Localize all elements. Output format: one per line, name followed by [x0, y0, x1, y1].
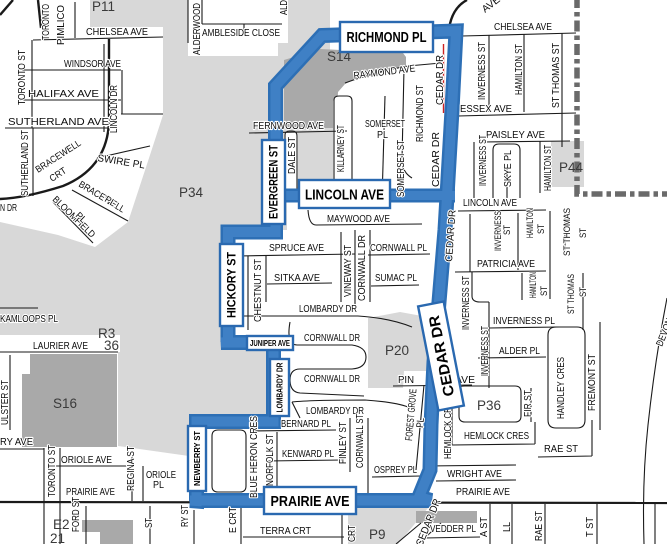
svg-text:PIN: PIN: [398, 375, 414, 386]
svg-text:CORNWALL DR: CORNWALL DR: [357, 235, 368, 301]
svg-text:MAYWOOD AVE: MAYWOOD AVE: [327, 214, 390, 225]
svg-text:SOMERSET ST: SOMERSET ST: [396, 140, 407, 197]
svg-text:HAMILTON: HAMILTON: [525, 208, 535, 238]
svg-text:ST: ST: [502, 225, 512, 235]
svg-text:WRIGHT AVE: WRIGHT AVE: [447, 469, 502, 480]
svg-text:CORNWALL DR: CORNWALL DR: [304, 374, 360, 385]
svg-text:AMBLESIDE CLOSE: AMBLESIDE CLOSE: [202, 28, 280, 39]
svg-text:RAE ST: RAE ST: [534, 511, 545, 541]
svg-text:E2: E2: [53, 517, 70, 532]
svg-text:PL: PL: [415, 417, 427, 428]
svg-text:T ST: T ST: [585, 517, 596, 537]
svg-text:P34: P34: [179, 185, 204, 200]
svg-text:P20: P20: [385, 343, 409, 358]
svg-text:HEMLOCK CRES: HEMLOCK CRES: [464, 431, 529, 442]
svg-text:PL: PL: [153, 480, 164, 491]
svg-text:SUTHERLAND AVE: SUTHERLAND AVE: [8, 117, 109, 128]
svg-text:RY ST: RY ST: [180, 505, 191, 527]
svg-text:INVERNESS PL: INVERNESS PL: [493, 316, 555, 327]
svg-text:CRT: CRT: [347, 525, 358, 542]
svg-text:DALE ST: DALE ST: [287, 137, 298, 174]
svg-text:LINCOLN AVE: LINCOLN AVE: [305, 188, 384, 204]
svg-text:VINEWAY ST: VINEWAY ST: [343, 245, 354, 297]
svg-text:BERNARD PL: BERNARD PL: [281, 419, 331, 430]
svg-text:TORONTO ST: TORONTO ST: [17, 50, 28, 105]
svg-text:LAURIER AVE: LAURIER AVE: [33, 341, 88, 352]
svg-text:NEWBERRY ST: NEWBERRY ST: [192, 430, 202, 486]
svg-text:INVERNESS ST: INVERNESS ST: [477, 42, 488, 100]
svg-text:RY AVE: RY AVE: [0, 437, 33, 448]
svg-text:E CRT: E CRT: [228, 507, 239, 533]
svg-text:ALD: ALD: [279, 0, 290, 15]
svg-text:CORNWALL ST: CORNWALL ST: [355, 414, 366, 468]
svg-text:PATRICIA AVE: PATRICIA AVE: [477, 259, 535, 270]
svg-text:ESSEX AVE: ESSEX AVE: [460, 104, 512, 115]
svg-text:SITKA AVE: SITKA AVE: [274, 273, 320, 284]
svg-text:LL: LL: [502, 522, 513, 532]
svg-text:P44: P44: [559, 160, 584, 175]
svg-text:LINCOLN AVE: LINCOLN AVE: [463, 198, 517, 209]
svg-text:HALIFAX AVE: HALIFAX AVE: [28, 89, 99, 100]
svg-text:CHESTNUT ST: CHESTNUT ST: [253, 259, 264, 322]
svg-text:ST THOMAS: ST THOMAS: [566, 274, 576, 314]
svg-text:LOMBARDY DR: LOMBARDY DR: [275, 363, 285, 413]
svg-text:TORONTO: TORONTO: [41, 4, 52, 40]
svg-text:OSPREY PL: OSPREY PL: [374, 465, 417, 476]
svg-text:S16: S16: [53, 396, 77, 411]
svg-text:P36: P36: [477, 398, 501, 413]
svg-text:EVERGREEN ST: EVERGREEN ST: [269, 145, 281, 219]
svg-text:TORONTO ST: TORONTO ST: [47, 445, 58, 497]
svg-text:N DR: N DR: [0, 203, 17, 214]
svg-text:PRAIRIE AVE: PRAIRIE AVE: [66, 487, 115, 498]
svg-text:KAMLOOPS PL: KAMLOOPS PL: [0, 314, 58, 325]
svg-text:INVERNESS ST: INVERNESS ST: [478, 135, 489, 186]
svg-text:HICKORY ST: HICKORY ST: [225, 251, 239, 318]
svg-text:FORD ST: FORD ST: [71, 497, 82, 532]
svg-text:KENWARD PL: KENWARD PL: [282, 449, 334, 460]
svg-text:ST THOMAS ST: ST THOMAS ST: [551, 43, 562, 108]
svg-text:P11: P11: [92, 0, 115, 14]
svg-text:CORNWALL PL: CORNWALL PL: [370, 243, 427, 254]
svg-text:HAMILTON ST: HAMILTON ST: [514, 44, 525, 95]
svg-text:21: 21: [50, 531, 65, 544]
svg-text:PAISLEY AVE: PAISLEY AVE: [486, 130, 545, 141]
svg-text:ST: ST: [578, 287, 588, 297]
svg-text:36: 36: [104, 338, 119, 353]
svg-text:ORIOLE AVE: ORIOLE AVE: [61, 455, 112, 466]
svg-text:REGINA ST: REGINA ST: [126, 446, 137, 491]
svg-text:SKYE PL: SKYE PL: [503, 150, 514, 187]
svg-text:P9: P9: [369, 527, 386, 542]
svg-text:CHELSEA AVE: CHELSEA AVE: [86, 27, 148, 38]
svg-text:HAMILTON: HAMILTON: [528, 272, 538, 298]
svg-text:A ST: A ST: [479, 517, 490, 537]
svg-text:INVERNESS ST: INVERNESS ST: [461, 276, 472, 330]
svg-text:HAMILTON ST: HAMILTON ST: [543, 145, 554, 191]
svg-text:PL: PL: [377, 130, 388, 141]
svg-text:ST: ST: [539, 286, 549, 296]
svg-text:WINDSOR AVE: WINDSOR AVE: [64, 59, 121, 70]
svg-text:SUMAC PL: SUMAC PL: [375, 273, 417, 284]
svg-text:RICHMOND ST: RICHMOND ST: [415, 85, 426, 142]
svg-text:CHELSEA AVE: CHELSEA AVE: [494, 22, 552, 33]
svg-text:ST: ST: [536, 224, 546, 234]
svg-text:CEDAR DR: CEDAR DR: [435, 55, 446, 105]
svg-text:PRAIRIE AVE: PRAIRIE AVE: [271, 494, 350, 510]
svg-text:CEDAR DR: CEDAR DR: [431, 132, 442, 187]
svg-text:HANDLEY CRES: HANDLEY CRES: [556, 357, 567, 419]
svg-text:BLUE HERON CRES: BLUE HERON CRES: [249, 416, 260, 498]
svg-text:SUTHERLAND ST: SUTHERLAND ST: [20, 130, 31, 196]
svg-text:ST: ST: [578, 228, 588, 238]
svg-text:PRAIRIE AVE: PRAIRIE AVE: [456, 487, 510, 498]
svg-text:PIMLICO: PIMLICO: [56, 5, 67, 45]
svg-text:NORFOLK ST: NORFOLK ST: [265, 434, 276, 486]
svg-text:JUNIPER AVE: JUNIPER AVE: [250, 339, 290, 348]
svg-text:FERNWOOD AVE: FERNWOOD AVE: [253, 121, 324, 132]
svg-text:LINCOLN DR: LINCOLN DR: [109, 85, 120, 133]
svg-text:TERRA CRT: TERRA CRT: [260, 526, 311, 537]
svg-text:INVERNESS ST: INVERNESS ST: [480, 326, 491, 376]
svg-text:KILLARNEY ST: KILLARNEY ST: [336, 125, 347, 172]
svg-text:ST THOMAS: ST THOMAS: [562, 208, 572, 256]
svg-text:RICHMOND PL: RICHMOND PL: [347, 30, 427, 46]
svg-text:FINLEY ST: FINLEY ST: [338, 422, 349, 464]
svg-text:ALDER PL: ALDER PL: [499, 346, 540, 357]
svg-text:ULSTER ST: ULSTER ST: [0, 380, 11, 425]
svg-text:SOMERSET: SOMERSET: [365, 119, 405, 130]
svg-text:LOMBARDY DR: LOMBARDY DR: [299, 304, 357, 315]
svg-text:FREMONT ST: FREMONT ST: [587, 354, 598, 411]
svg-text:RAE ST: RAE ST: [544, 444, 578, 455]
svg-text:FIR ST: FIR ST: [523, 390, 534, 417]
svg-text:ST: ST: [144, 518, 155, 528]
svg-text:SPRUCE AVE: SPRUCE AVE: [269, 243, 324, 254]
svg-text:VEDDER PL: VEDDER PL: [430, 524, 476, 535]
svg-text:CORNWALL DR: CORNWALL DR: [304, 333, 360, 344]
